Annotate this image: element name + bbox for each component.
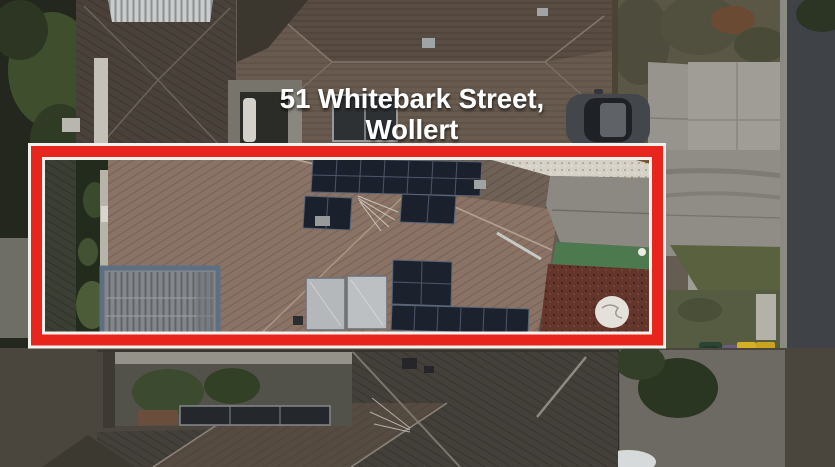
screenshot-root: 51 Whitebark Street, Wollert bbox=[0, 0, 835, 467]
roof-vent bbox=[537, 8, 548, 16]
parked-car-dark bbox=[566, 89, 650, 151]
plumbing-fitting bbox=[293, 316, 303, 325]
roof-vent bbox=[402, 358, 417, 369]
roof-vent bbox=[474, 180, 486, 189]
roof-vent bbox=[315, 216, 330, 226]
white-object bbox=[243, 98, 256, 142]
hot-water-panels bbox=[293, 276, 387, 330]
white-wall bbox=[94, 58, 108, 154]
address-line-2: Wollert bbox=[366, 114, 459, 145]
courtyard-wall bbox=[115, 352, 352, 364]
tree bbox=[615, 344, 665, 380]
courtyard-tree bbox=[204, 368, 260, 404]
driveway-crossover bbox=[660, 150, 785, 256]
ac-unit bbox=[62, 118, 80, 132]
bottom-courtyard bbox=[103, 352, 352, 428]
white-bag bbox=[595, 296, 629, 328]
side-wall bbox=[0, 238, 28, 338]
neighbour-house-top-left bbox=[62, 0, 236, 154]
roof-vent bbox=[422, 38, 435, 48]
aerial-photo: 51 Whitebark Street, Wollert bbox=[0, 0, 835, 467]
courtyard-window bbox=[180, 406, 330, 425]
address-line-1: 51 Whitebark Street, bbox=[280, 83, 544, 114]
neighbour-house-bottom bbox=[0, 344, 835, 467]
car-mirror bbox=[594, 89, 603, 94]
subject-property-interior bbox=[38, 148, 658, 348]
courtyard-deck bbox=[138, 410, 178, 425]
car-roof bbox=[600, 103, 626, 137]
footpath-strip bbox=[756, 294, 776, 340]
white-ball bbox=[638, 248, 646, 256]
roof-vent bbox=[424, 366, 434, 373]
